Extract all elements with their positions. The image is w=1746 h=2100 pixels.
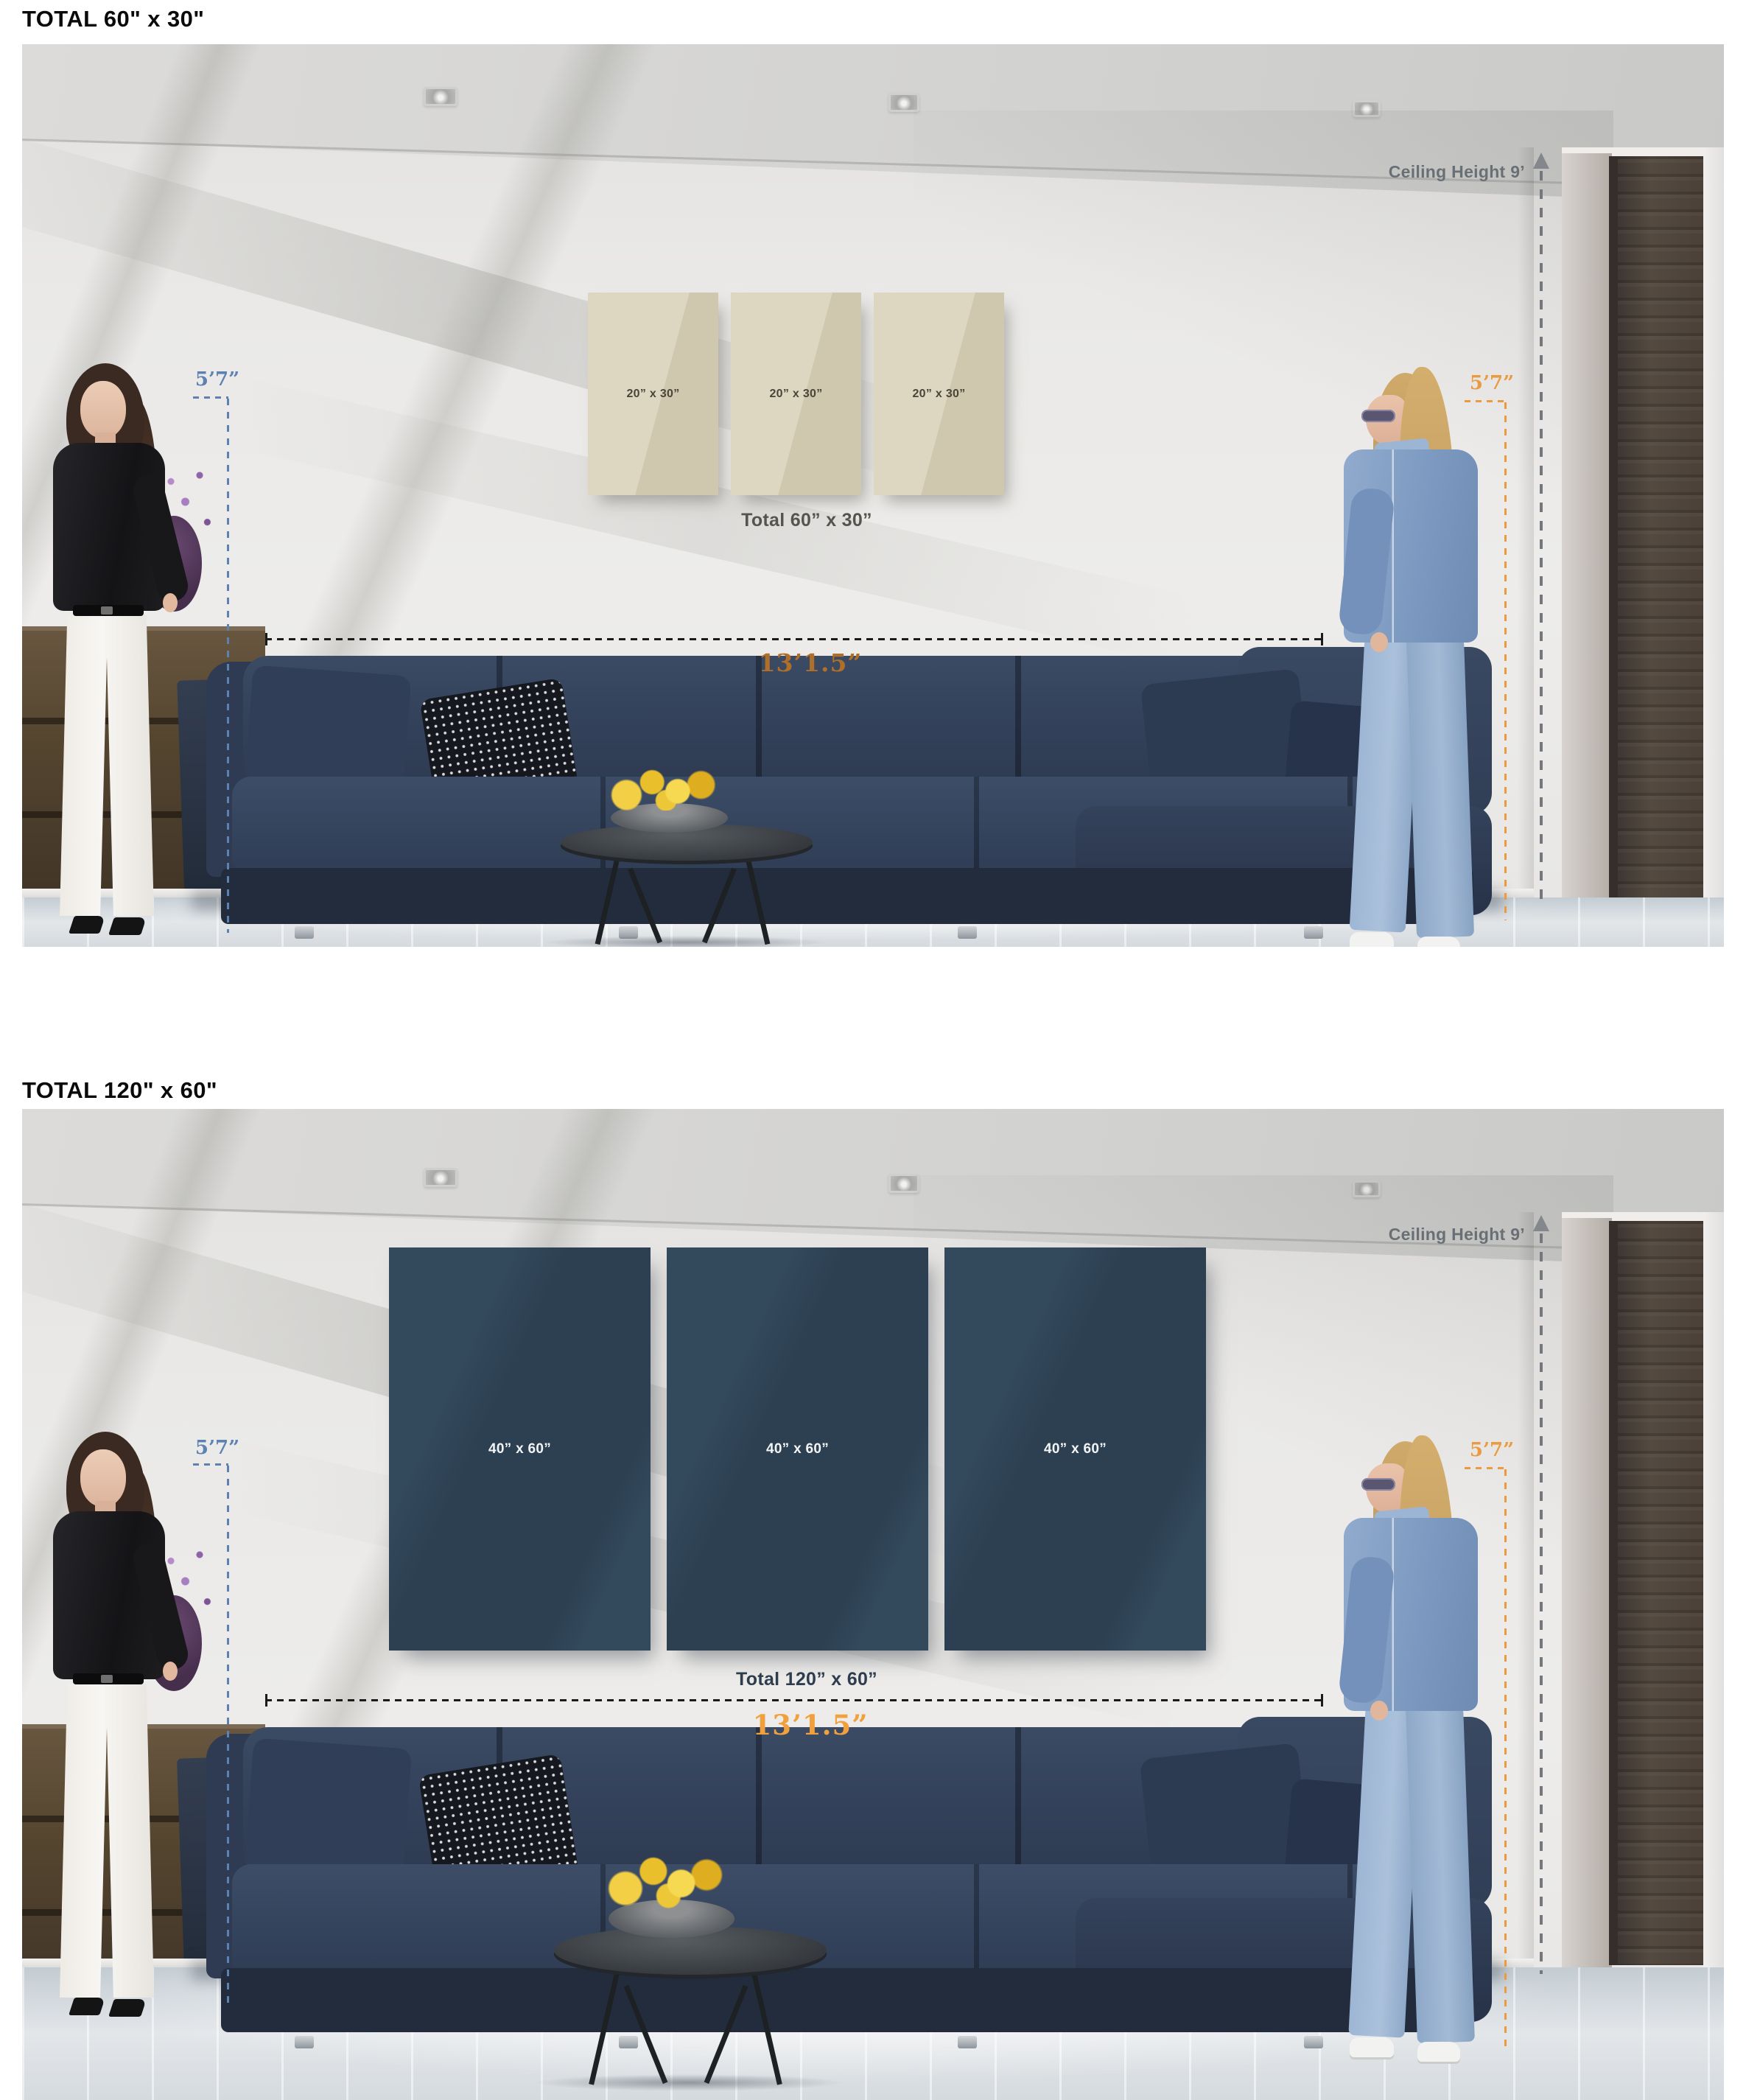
woman-right bbox=[1332, 367, 1490, 947]
door bbox=[1609, 1221, 1712, 1965]
ceiling-height-line bbox=[1540, 171, 1543, 900]
shoe bbox=[108, 917, 147, 935]
sneaker bbox=[1350, 2037, 1394, 2057]
canvas-group: 20” x 30” 20” x 30” 20” x 30” bbox=[588, 293, 1004, 495]
face bbox=[80, 1449, 126, 1507]
ceiling-height-line bbox=[1540, 1233, 1543, 1974]
ceiling-height-label: Ceiling Height 9’ bbox=[1341, 1225, 1525, 1245]
table-leg bbox=[623, 1985, 667, 2084]
wall-corner-shade bbox=[1518, 1212, 1534, 1971]
canvas-panel: 40” x 60” bbox=[667, 1247, 928, 1651]
canvas-panel: 40” x 60” bbox=[944, 1247, 1206, 1651]
canvas-panel: 20” x 30” bbox=[588, 293, 718, 495]
door-side-wall bbox=[1703, 1212, 1724, 1993]
face bbox=[80, 381, 126, 438]
hand bbox=[1370, 1701, 1388, 1721]
shoe bbox=[69, 1998, 105, 2015]
sofa-foot bbox=[958, 926, 977, 939]
canvas-size-label: 20” x 30” bbox=[769, 388, 822, 401]
room-scene-large-set: 40” x 60” 40” x 60” 40” x 60” Total 120”… bbox=[22, 1109, 1724, 2100]
sofa-width-line bbox=[265, 1699, 1323, 1701]
sofa-foot bbox=[1304, 926, 1323, 939]
white-trousers bbox=[60, 1684, 154, 1998]
wall-corner-shade bbox=[1518, 147, 1534, 906]
canvas-panel: 20” x 30” bbox=[874, 293, 1004, 495]
table-leg bbox=[595, 852, 622, 945]
table-leg bbox=[702, 868, 737, 943]
sofa-foot bbox=[295, 2036, 314, 2048]
left-height-line bbox=[193, 396, 228, 399]
table-leg bbox=[750, 1964, 783, 2086]
lemons bbox=[603, 1848, 729, 1909]
canvas-panel: 40” x 60” bbox=[389, 1247, 651, 1651]
dimension-tick bbox=[1321, 1694, 1323, 1707]
sofa-width-label: 13’1.5” bbox=[715, 648, 906, 677]
sofa-foot bbox=[295, 926, 314, 939]
sofa bbox=[206, 1717, 1492, 2052]
hand bbox=[1370, 632, 1388, 652]
table-leg bbox=[628, 868, 663, 943]
belt-buckle bbox=[101, 606, 113, 615]
ceiling-light bbox=[1353, 100, 1381, 117]
canvas-size-label: 20” x 30” bbox=[912, 388, 965, 401]
ceiling-light bbox=[1353, 1180, 1381, 1197]
right-person-height-label: 5’7” bbox=[1465, 372, 1519, 394]
pillow bbox=[1140, 668, 1309, 794]
left-height-line bbox=[193, 1463, 228, 1466]
door-side-wall bbox=[1703, 147, 1724, 928]
left-person-height-label: 5’7” bbox=[190, 368, 245, 391]
pillow bbox=[245, 665, 412, 794]
total-size-label: Total 60” x 30” bbox=[689, 510, 925, 531]
left-height-line bbox=[227, 399, 229, 933]
ceiling-light bbox=[424, 87, 457, 106]
sofa-base bbox=[221, 868, 1473, 924]
jeans-leg bbox=[1406, 637, 1474, 938]
arrow-up-icon bbox=[1533, 153, 1549, 169]
sofa-foot bbox=[958, 2036, 977, 2048]
door bbox=[1609, 156, 1712, 900]
ceiling-light bbox=[888, 93, 919, 112]
panel-title-large-set: TOTAL 120" x 60" bbox=[22, 1077, 217, 1104]
canvas-size-label: 40” x 60” bbox=[766, 1441, 829, 1457]
coffee-table bbox=[545, 1846, 832, 2089]
pillow bbox=[1140, 1743, 1310, 1883]
doorway bbox=[1532, 147, 1724, 928]
arrow-up-icon bbox=[1533, 1215, 1549, 1231]
woman-left bbox=[33, 363, 180, 939]
sofa-base bbox=[221, 1968, 1473, 2031]
sofa bbox=[206, 647, 1492, 942]
doorway bbox=[1532, 1212, 1724, 1993]
hand bbox=[163, 593, 178, 612]
ceiling-light bbox=[888, 1174, 919, 1193]
canvas-group: 40” x 60” 40” x 60” 40” x 60” bbox=[389, 1247, 1206, 1651]
sneaker bbox=[1417, 2042, 1460, 2062]
canvas-panel: 20” x 30” bbox=[731, 293, 861, 495]
canvas-size-label: 20” x 30” bbox=[626, 388, 679, 401]
total-size-label: Total 120” x 60” bbox=[689, 1669, 925, 1690]
sofa-foot bbox=[1304, 2036, 1323, 2048]
table-shadow bbox=[542, 936, 829, 947]
door-recess-shadow bbox=[1562, 153, 1612, 908]
dimension-tick bbox=[1321, 633, 1323, 645]
pillow bbox=[245, 1738, 412, 1883]
sofa-width-label: 13’1.5” bbox=[715, 1709, 906, 1741]
right-height-line bbox=[1465, 400, 1506, 402]
lemons bbox=[606, 765, 722, 811]
room-scene-small-set: 20” x 30” 20” x 30” 20” x 30” Total 60” … bbox=[22, 44, 1724, 947]
panel-title-small-set: TOTAL 60" x 30" bbox=[22, 6, 204, 32]
table-leg bbox=[589, 1964, 622, 2086]
shoe bbox=[108, 1999, 147, 2017]
dimension-tick bbox=[265, 1694, 267, 1707]
hand bbox=[163, 1662, 178, 1681]
right-person-height-label: 5’7” bbox=[1465, 1439, 1519, 1461]
door-recess-shadow bbox=[1562, 1218, 1612, 1973]
right-height-line bbox=[1504, 402, 1507, 920]
right-height-line bbox=[1465, 1467, 1506, 1469]
ceiling-height-label: Ceiling Height 9’ bbox=[1341, 162, 1525, 182]
shoe bbox=[69, 916, 105, 934]
jeans-leg bbox=[1406, 1706, 1475, 2043]
woman-left bbox=[33, 1432, 180, 2021]
belt-buckle bbox=[101, 1675, 113, 1683]
white-trousers bbox=[60, 615, 154, 916]
sunglasses-icon bbox=[1361, 410, 1395, 422]
sofa-width-line bbox=[265, 638, 1323, 640]
table-shadow bbox=[533, 2074, 844, 2091]
table-leg bbox=[743, 852, 770, 945]
woman-right bbox=[1332, 1435, 1490, 2062]
left-person-height-label: 5’7” bbox=[190, 1437, 245, 1459]
canvas-size-label: 40” x 60” bbox=[488, 1441, 551, 1457]
table-leg bbox=[704, 1985, 748, 2084]
canvas-size-label: 40” x 60” bbox=[1044, 1441, 1107, 1457]
sunglasses-icon bbox=[1361, 1478, 1395, 1491]
sneaker bbox=[1417, 937, 1460, 947]
ceiling-light bbox=[424, 1168, 457, 1187]
dimension-tick bbox=[265, 633, 267, 645]
left-height-line bbox=[227, 1466, 229, 2003]
right-height-line bbox=[1504, 1469, 1507, 2053]
coffee-table bbox=[553, 763, 818, 947]
sneaker bbox=[1350, 932, 1394, 947]
